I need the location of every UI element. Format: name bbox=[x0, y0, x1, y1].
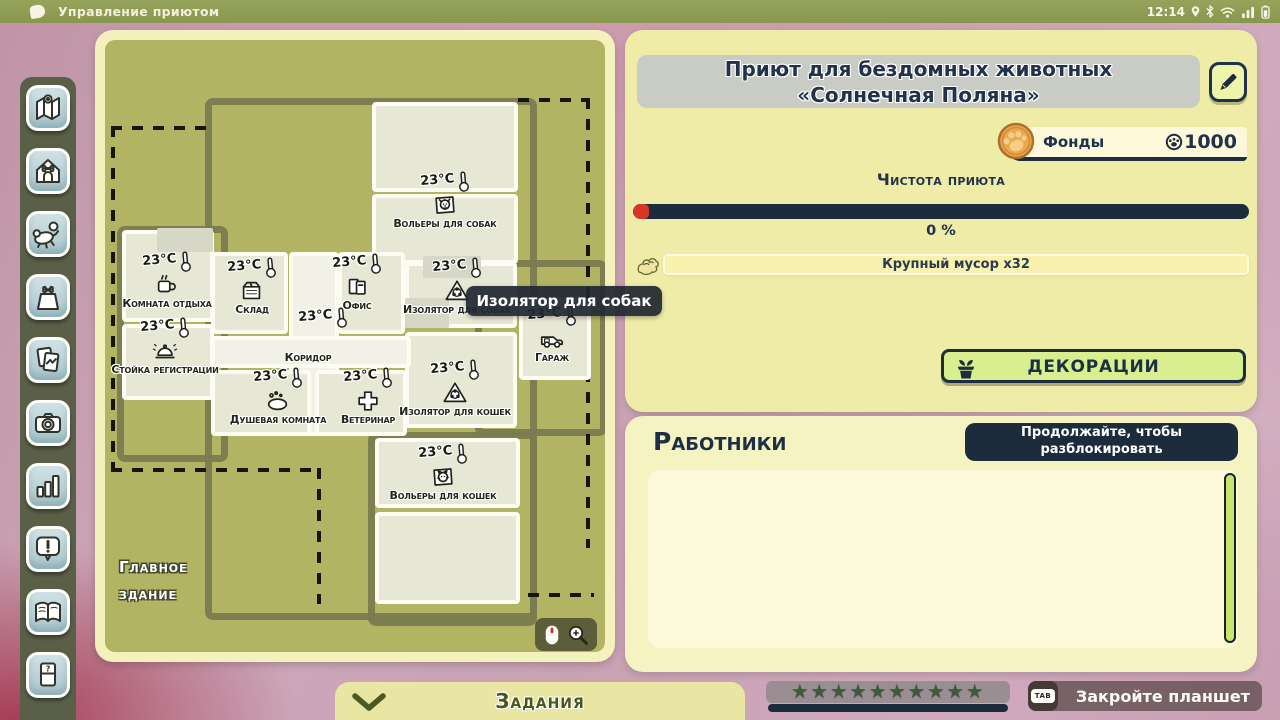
sidebar-adoption-button[interactable] bbox=[26, 211, 70, 257]
boundary-dash bbox=[111, 468, 321, 472]
tasks-tab[interactable]: Задания bbox=[335, 682, 745, 720]
cleanliness-fill bbox=[633, 204, 649, 219]
boundary-dash bbox=[528, 593, 594, 597]
location-icon bbox=[1191, 5, 1200, 18]
room[interactable] bbox=[338, 252, 405, 334]
shelter-icon bbox=[32, 155, 64, 187]
tablet-app-icon bbox=[29, 4, 46, 19]
cleanliness-title: Чистота приюта bbox=[625, 170, 1257, 189]
pencil-icon bbox=[1217, 71, 1239, 93]
cleanliness-bar bbox=[633, 204, 1249, 219]
unlock-line2: разблокировать bbox=[1040, 442, 1162, 459]
boundary-dash bbox=[518, 98, 590, 102]
sidebar-stats-button[interactable] bbox=[26, 463, 70, 509]
room[interactable] bbox=[375, 512, 520, 604]
room[interactable] bbox=[405, 332, 517, 428]
help-icon: ? bbox=[32, 659, 64, 691]
mouse-scroll-icon bbox=[544, 624, 560, 646]
shelter-name-box: Приют для бездомных животных «Солнечная … bbox=[637, 55, 1200, 108]
tab-key-label: TAB bbox=[1031, 689, 1055, 703]
battery-icon bbox=[1261, 5, 1270, 19]
rating-progress-bar bbox=[768, 704, 1008, 712]
map-zoom-controls[interactable] bbox=[535, 618, 597, 651]
trash-count-bar: Крупный мусор x32 bbox=[663, 254, 1249, 275]
funds-value: 1000 bbox=[1165, 131, 1237, 153]
journal-icon bbox=[32, 596, 64, 628]
tab-key-icon: TAB bbox=[1028, 681, 1058, 711]
room[interactable] bbox=[405, 298, 449, 328]
paw-coin-icon bbox=[997, 122, 1035, 160]
signal-icon bbox=[1241, 6, 1255, 18]
area-label: Главное здание bbox=[119, 554, 188, 608]
workers-title: Работники bbox=[653, 427, 786, 456]
coin-glyph-icon bbox=[1165, 133, 1183, 151]
camera-icon bbox=[32, 407, 64, 439]
room[interactable] bbox=[375, 438, 520, 508]
map-icon bbox=[32, 92, 64, 124]
bluetooth-icon bbox=[1206, 5, 1214, 18]
sidebar-supplies-button[interactable] bbox=[26, 274, 70, 320]
clock: 12:14 bbox=[1147, 5, 1185, 19]
workers-list bbox=[648, 470, 1238, 648]
status-icons: 12:14 bbox=[1147, 5, 1270, 19]
map-panel: Главное здание 23°CВольеры для собак23°C… bbox=[95, 30, 615, 662]
supplies-icon bbox=[32, 281, 64, 313]
funds-display: Фонды 1000 bbox=[1005, 127, 1247, 161]
wifi-icon bbox=[1220, 6, 1235, 18]
sidebar-map-button[interactable] bbox=[26, 85, 70, 131]
room[interactable] bbox=[211, 252, 288, 334]
sidebar-help-button[interactable]: ? bbox=[26, 652, 70, 698]
unlock-workers-button[interactable]: Продолжайте, чтобы разблокировать bbox=[965, 423, 1238, 461]
cleanliness-percent: 0 % bbox=[625, 223, 1257, 239]
room[interactable] bbox=[211, 336, 411, 368]
boundary-dash bbox=[111, 126, 115, 472]
trash-icon bbox=[635, 252, 661, 276]
trash-label: Крупный мусор x32 bbox=[882, 257, 1030, 272]
status-bar: Управление приютом 12:14 bbox=[0, 0, 1280, 23]
toolbar-sidebar: ? bbox=[20, 77, 76, 720]
sidebar-photos-button[interactable] bbox=[26, 337, 70, 383]
tasks-label: Задания bbox=[335, 689, 745, 713]
shelter-info-panel: Приют для бездомных животных «Солнечная … bbox=[625, 30, 1257, 412]
room[interactable] bbox=[122, 324, 214, 400]
adoption-icon bbox=[32, 218, 64, 250]
rating-stars: ★★★★★★★★★★ bbox=[766, 681, 1010, 703]
close-tablet-label: Закройте планшет bbox=[1076, 687, 1250, 706]
trash-status-row: Крупный мусор x32 bbox=[635, 251, 1249, 277]
sidebar-alerts-button[interactable] bbox=[26, 526, 70, 572]
boundary-dash bbox=[111, 126, 209, 130]
shelter-name: Приют для бездомных животных «Солнечная … bbox=[661, 56, 1176, 108]
room[interactable] bbox=[423, 256, 481, 278]
room[interactable] bbox=[372, 102, 518, 192]
app-title: Управление приютом bbox=[58, 4, 219, 19]
shelter-map[interactable]: Главное здание 23°CВольеры для собак23°C… bbox=[105, 40, 605, 652]
decorations-label: ДЕКОРАЦИИ bbox=[944, 357, 1243, 377]
funds-label: Фонды bbox=[1043, 133, 1104, 151]
sidebar-shelter-button[interactable] bbox=[26, 148, 70, 194]
decorations-button[interactable]: ДЕКОРАЦИИ bbox=[941, 349, 1246, 383]
room[interactable] bbox=[211, 370, 311, 436]
svg-text:?: ? bbox=[46, 665, 51, 674]
sidebar-camera-button[interactable] bbox=[26, 400, 70, 446]
unlock-line1: Продолжайте, чтобы bbox=[1021, 425, 1182, 442]
workers-panel: Работники Продолжайте, чтобы разблокиров… bbox=[625, 416, 1257, 672]
room[interactable] bbox=[157, 228, 213, 252]
sidebar-journal-button[interactable] bbox=[26, 589, 70, 635]
edit-name-button[interactable] bbox=[1209, 62, 1247, 102]
room-tooltip: Изолятор для собак bbox=[466, 286, 662, 316]
zoom-in-icon bbox=[567, 624, 589, 646]
alerts-icon bbox=[32, 533, 64, 565]
photos-icon bbox=[32, 344, 64, 376]
room[interactable] bbox=[315, 370, 407, 436]
star-icons: ★★★★★★★★★★ bbox=[791, 681, 985, 701]
boundary-dash bbox=[317, 468, 321, 604]
stats-icon bbox=[32, 470, 64, 502]
workers-scrollbar[interactable] bbox=[1224, 473, 1236, 643]
close-tablet-hint: TAB Закройте планшет bbox=[1028, 681, 1262, 711]
